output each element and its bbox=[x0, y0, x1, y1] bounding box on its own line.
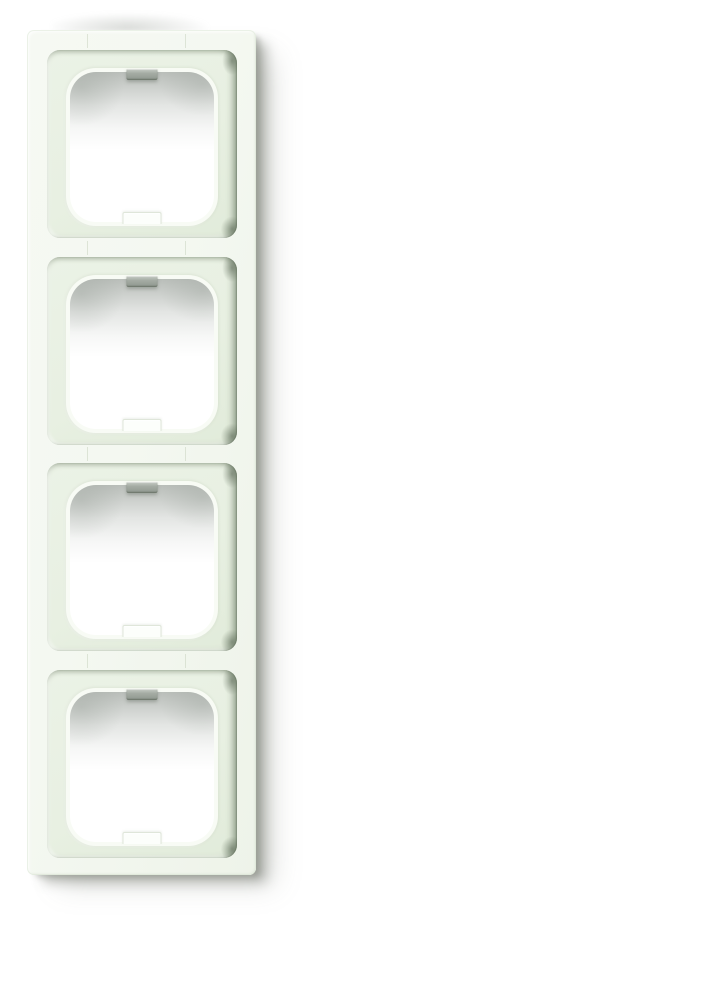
module-opening bbox=[70, 72, 214, 222]
cover-frame bbox=[27, 30, 256, 875]
opening-inner-shadow bbox=[70, 72, 214, 222]
mold-mark bbox=[87, 654, 88, 668]
top-tab-notch bbox=[127, 276, 158, 287]
opening-inner-shadow bbox=[70, 692, 214, 842]
frame-module-2 bbox=[47, 257, 237, 445]
module-opening bbox=[70, 692, 214, 842]
mold-mark bbox=[185, 241, 186, 255]
ambient-shadow-top bbox=[52, 0, 252, 32]
module-recess bbox=[47, 257, 237, 445]
top-tab-notch bbox=[127, 69, 158, 80]
mold-mark bbox=[185, 447, 186, 461]
top-tab-notch bbox=[127, 482, 158, 493]
mold-mark bbox=[87, 447, 88, 461]
top-tab-notch bbox=[127, 689, 158, 700]
opening-inner-shadow bbox=[70, 485, 214, 635]
bottom-tab-notch bbox=[123, 419, 162, 431]
mold-mark bbox=[87, 241, 88, 255]
frame-module-4 bbox=[47, 670, 237, 858]
module-opening bbox=[70, 279, 214, 429]
bottom-tab-notch bbox=[123, 212, 162, 224]
opening-inner-shadow bbox=[70, 279, 214, 429]
bottom-tab-notch bbox=[123, 832, 162, 844]
mold-mark bbox=[185, 654, 186, 668]
mold-mark bbox=[87, 34, 88, 48]
module-recess bbox=[47, 670, 237, 858]
product-photo bbox=[0, 0, 709, 982]
module-opening bbox=[70, 485, 214, 635]
frame-module-1 bbox=[47, 50, 237, 238]
module-recess bbox=[47, 463, 237, 651]
module-recess bbox=[47, 50, 237, 238]
bottom-tab-notch bbox=[123, 625, 162, 637]
mold-mark bbox=[185, 34, 186, 48]
frame-module-3 bbox=[47, 463, 237, 651]
